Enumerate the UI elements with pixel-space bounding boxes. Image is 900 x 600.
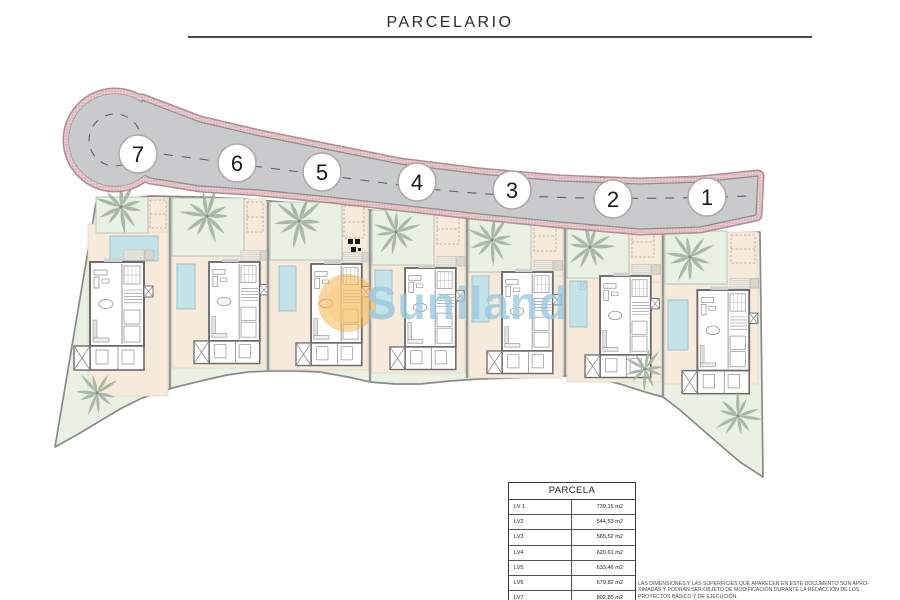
- parcel-area: 739,15 m2: [572, 500, 635, 514]
- parcel-area: 620,61 m2: [572, 546, 635, 560]
- plot-6: [172, 188, 269, 368]
- plot-marker-label: 4: [411, 170, 423, 195]
- disclaimer-text: LAS DIMENSIONES Y LAS SUPERFICIES QUE AP…: [638, 581, 894, 600]
- parcel-area: 679,82 m2: [572, 576, 635, 590]
- plot-marker-1: 1: [688, 178, 726, 216]
- plot-marker-label: 3: [506, 178, 518, 203]
- table-row: LV7802,85 m2: [509, 591, 635, 600]
- plot-marker-4: 4: [398, 163, 436, 201]
- parcel-label: LV3: [509, 530, 572, 544]
- parcel-area: 544,53 m2: [572, 515, 635, 529]
- disclaimer-line: XIMADAS Y PODRÁN SER OBJETO DE MODIFICAC…: [638, 587, 894, 593]
- swimming-pool: [177, 264, 195, 309]
- plot-marker-6: 6: [218, 144, 256, 182]
- plot-marker-label: 1: [701, 185, 713, 210]
- parcel-area: 565,52 m2: [572, 530, 635, 544]
- parcel-label: LV6: [509, 576, 572, 590]
- parcel-table-body: LV 1739,15 m2LV2544,53 m2LV3565,52 m2LV4…: [509, 500, 635, 600]
- plot-marker-7: 7: [119, 135, 157, 173]
- parcel-label: LV4: [509, 546, 572, 560]
- parcel-label: LV 1: [509, 500, 572, 514]
- plot-marker-5: 5: [303, 153, 341, 191]
- parcel-area: 633,46 m2: [572, 561, 635, 575]
- plot-marker-label: 5: [316, 160, 328, 185]
- site-plan: 7654321Suniland®: [0, 0, 900, 600]
- plot-marker-label: 7: [132, 142, 144, 167]
- plot-marker-label: 6: [231, 151, 243, 176]
- disclaimer-line: PROYECTOS BÁSICO Y DE EJECUCIÓN.: [638, 594, 894, 600]
- watermark-text: Suniland: [366, 277, 568, 329]
- table-row: LV6679,82 m2: [509, 576, 635, 591]
- watermark-registered-icon: ®: [577, 278, 587, 293]
- watermark: Suniland®: [318, 274, 587, 332]
- swimming-pool: [279, 266, 296, 311]
- parcel-label: LV2: [509, 515, 572, 529]
- table-row: LV3565,52 m2: [509, 530, 635, 545]
- plot-marker-label: 2: [607, 187, 619, 212]
- parcel-table-header: PARCELA: [509, 483, 635, 500]
- table-row: LV2544,53 m2: [509, 515, 635, 530]
- plot-2: [557, 214, 669, 396]
- parcel-plan-page: PARCELARIO 7654321Suniland® PARCELA LV 1…: [0, 0, 900, 600]
- swimming-pool: [668, 300, 688, 350]
- table-row: LV 1739,15 m2: [509, 500, 635, 515]
- parcel-label: LV5: [509, 561, 572, 575]
- plot-marker-2: 2: [594, 180, 632, 218]
- plot-marker-3: 3: [493, 171, 531, 209]
- parcel-table: PARCELA LV 1739,15 m2LV2544,53 m2LV3565,…: [508, 482, 636, 600]
- parcel-label: LV7: [509, 591, 572, 600]
- parcel-area: 802,85 m2: [572, 591, 635, 600]
- table-row: LV5633,46 m2: [509, 561, 635, 576]
- table-row: LV4620,61 m2: [509, 546, 635, 561]
